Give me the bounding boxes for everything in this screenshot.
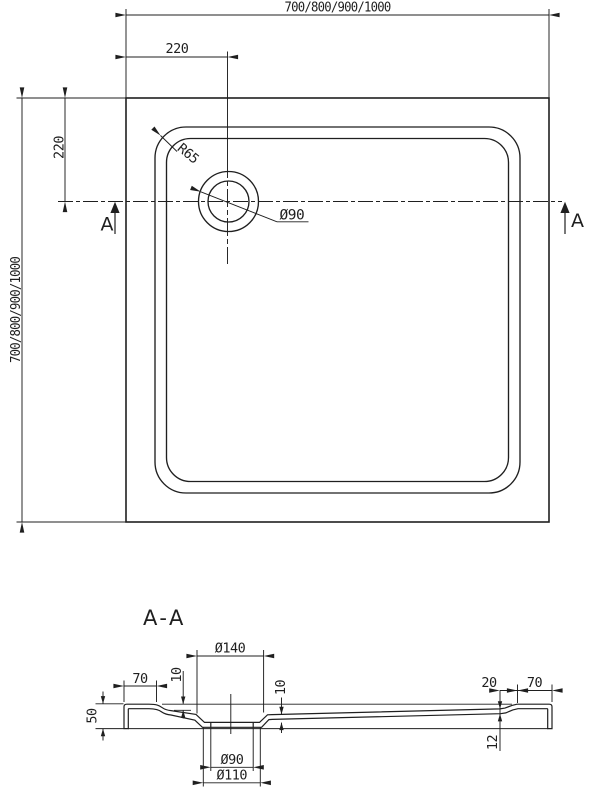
- dim-height-label: 700/800/900/1000: [9, 257, 24, 363]
- dim-drain-hole: Ø90: [211, 727, 253, 771]
- dim-90-label: Ø90: [221, 752, 244, 768]
- section-view: A-A Ø140 70: [85, 606, 553, 787]
- shower-tray-drawing: 700/800/900/1000 700/800/900/1000 220 22…: [0, 0, 609, 792]
- leader-line: [161, 136, 178, 152]
- basin-rim-inner: [167, 139, 509, 482]
- drawing-canvas: 700/800/900/1000 700/800/900/1000 220 22…: [0, 0, 609, 792]
- section-title: A-A: [143, 606, 186, 630]
- arrow-up: [101, 729, 105, 737]
- dim-drain-offset-v: 220: [52, 98, 68, 202]
- dim-220-v-label: 220: [52, 136, 68, 159]
- dim-70-left-label: 70: [132, 671, 148, 687]
- dim-12-label: 12: [485, 735, 501, 750]
- dim-width-label: 700/800/900/1000: [285, 1, 391, 16]
- drain-diameter-label: Ø90: [280, 208, 305, 224]
- r65-label: R65: [174, 140, 202, 167]
- dim-20-label: 20: [481, 675, 497, 691]
- arrow-up: [498, 714, 502, 722]
- leader-line: [201, 192, 277, 222]
- dim-drain-offset-h: 220: [126, 41, 228, 57]
- dim-total-height: 50: [85, 692, 124, 741]
- cut-label-right: A: [571, 210, 584, 232]
- arrow-down: [101, 696, 105, 704]
- dim-10-left-label: 10: [169, 667, 185, 683]
- basin-rim-outer: [155, 127, 520, 493]
- dim-140-label: Ø140: [215, 641, 246, 657]
- dim-left-edge: 70: [124, 671, 157, 702]
- dim-10-right-label: 10: [273, 680, 289, 696]
- arrow-up: [181, 710, 185, 718]
- arrow-down: [279, 707, 283, 715]
- dim-left-height: 700/800/900/1000: [9, 98, 126, 522]
- cut-arrow-head: [560, 202, 569, 213]
- cut-label-left: A: [101, 214, 114, 236]
- arrow-up: [279, 722, 283, 730]
- arrow-down: [181, 697, 185, 705]
- dim-220-h-label: 220: [166, 41, 189, 57]
- dim-recess-diameter: Ø140: [197, 641, 264, 714]
- tray-shell-section: [124, 704, 552, 728]
- dim-110-label: Ø110: [217, 768, 248, 784]
- cut-marker-left: A: [101, 202, 120, 236]
- plan-view: 700/800/900/1000 700/800/900/1000 220 22…: [9, 1, 584, 523]
- dim-floor-thickness: 12: [485, 691, 502, 752]
- cut-arrow-head: [110, 202, 119, 213]
- dim-recess-depth: 10: [273, 680, 289, 733]
- dim-50-label: 50: [85, 708, 101, 724]
- centerlines: [58, 52, 562, 265]
- cut-marker-right: A: [560, 202, 584, 234]
- dim-70-right-label: 70: [527, 675, 543, 691]
- arrow-down: [498, 701, 502, 709]
- dim-top-width: 700/800/900/1000: [126, 1, 549, 98]
- dim-right-edge: 20 70: [481, 675, 552, 703]
